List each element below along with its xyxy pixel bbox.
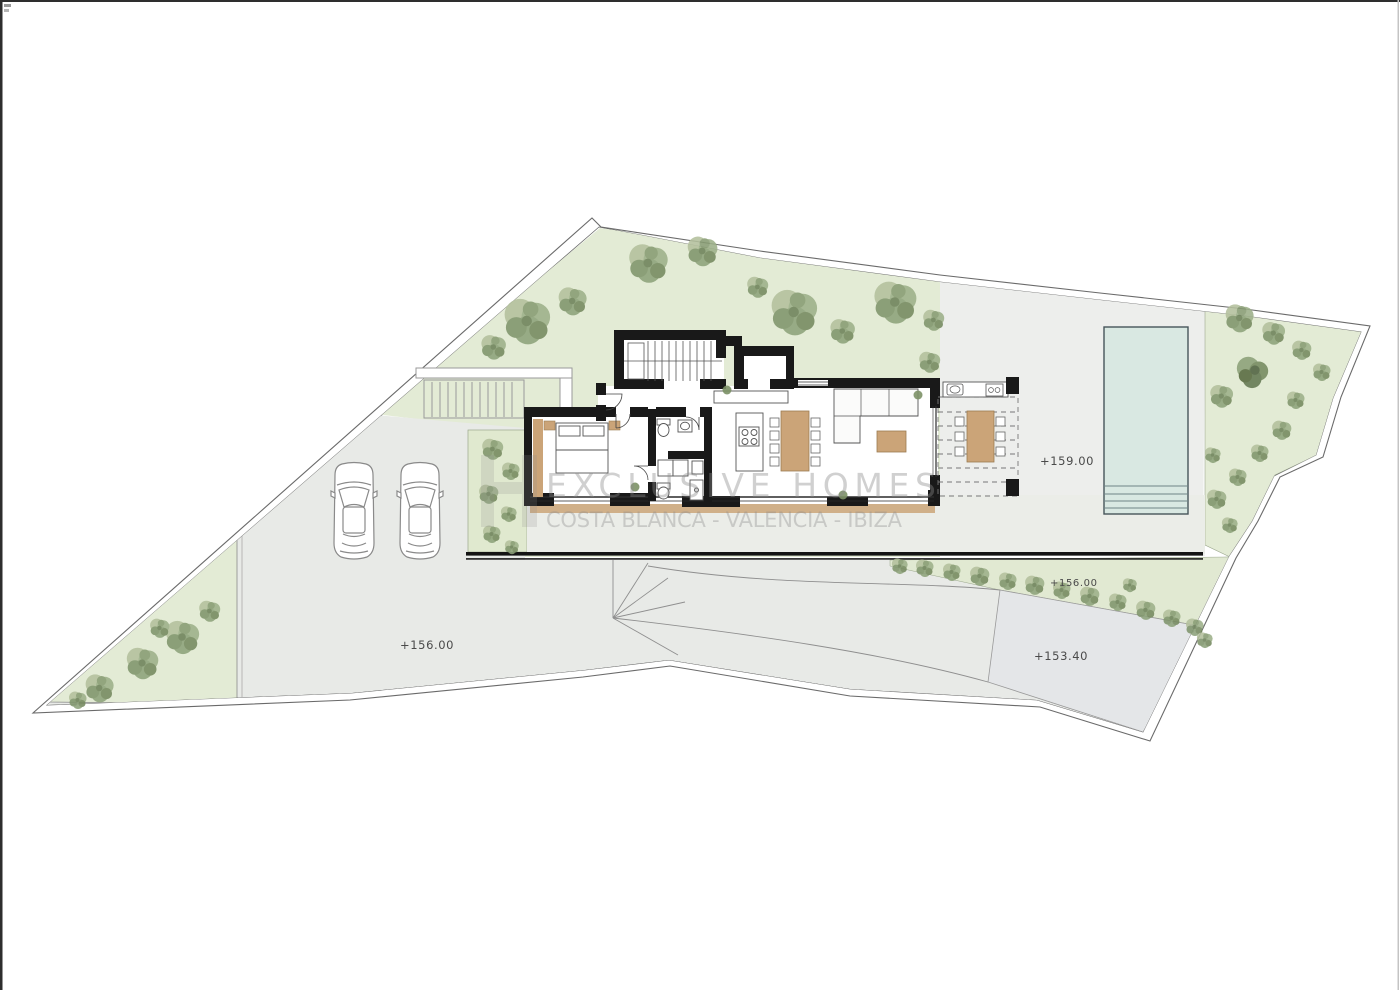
nightstand [609, 421, 620, 430]
nightstand [544, 421, 555, 430]
outdoor-dining-table [967, 411, 994, 462]
car-icon [331, 463, 377, 560]
dining-table [781, 411, 809, 471]
pool-terrace-level-label: +159.00 [1040, 454, 1094, 468]
watermark-regions: COSTA BLANCA - VALENCIA - IBIZA [546, 508, 903, 532]
car-icon [397, 463, 443, 560]
site-plan-drawing: +159.00 +156.00 +156.00 +153.40 EXCLUSIV… [0, 0, 1400, 990]
garden-band-level-label: +156.00 [1050, 578, 1098, 589]
site-plan-page: +159.00 +156.00 +156.00 +153.40 EXCLUSIV… [0, 0, 1400, 990]
watermark-brand: EXCLUSIVE HOMES [546, 466, 936, 505]
watermark: EXCLUSIVE HOMES COSTA BLANCA - VALENCIA … [481, 455, 936, 532]
living-window [798, 380, 828, 386]
toilet-icon [658, 424, 669, 437]
pergola-column [1006, 479, 1019, 496]
coffee-table [877, 431, 906, 452]
driveway-level-label: +156.00 [400, 638, 454, 652]
lower-terrace-level-label: +153.40 [1034, 649, 1088, 663]
swimming-pool [1104, 327, 1188, 514]
corner-mark [4, 4, 11, 7]
pergola-column [1006, 377, 1019, 394]
